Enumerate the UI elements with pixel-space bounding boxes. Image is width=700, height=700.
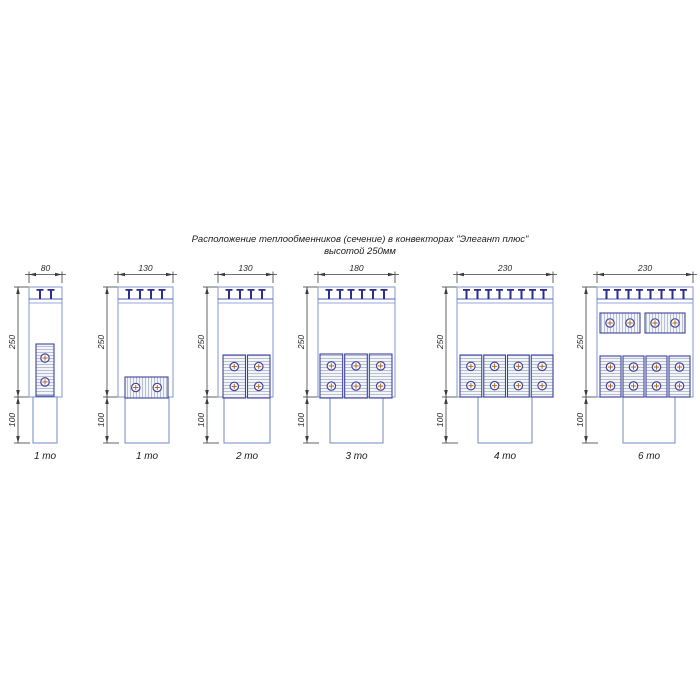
dimension-arrow bbox=[16, 390, 20, 397]
grille-tee-icon bbox=[328, 289, 330, 299]
dimension-arrow bbox=[444, 390, 448, 397]
dimension-arrow bbox=[388, 273, 395, 277]
dimension-arrow bbox=[305, 436, 309, 443]
height-dimension-label: 250 bbox=[435, 335, 445, 350]
width-dimension-label: 130 bbox=[238, 263, 252, 273]
height-dimension-label: 250 bbox=[575, 335, 585, 350]
duct-height-dimension-label: 100 bbox=[296, 413, 306, 427]
grille-tee-icon bbox=[543, 289, 545, 299]
dimension-arrow bbox=[29, 273, 36, 277]
dimension-arrow bbox=[16, 287, 20, 294]
grille-tee-icon bbox=[466, 289, 468, 299]
duct-height-dimension-label: 100 bbox=[96, 413, 106, 427]
dimension-arrow bbox=[105, 287, 109, 294]
dimension-arrow bbox=[318, 273, 325, 277]
grille-tee-icon bbox=[239, 289, 241, 299]
width-dimension-label: 80 bbox=[41, 263, 51, 273]
dimension-arrow bbox=[305, 390, 309, 397]
dimension-arrow bbox=[584, 436, 588, 443]
heat-exchanger-block bbox=[484, 355, 506, 397]
dimension-arrow bbox=[457, 273, 464, 277]
width-dimension-label: 230 bbox=[497, 263, 512, 273]
grille-tee-icon bbox=[128, 289, 130, 299]
convector-duct bbox=[33, 397, 57, 443]
grille-tee-icon bbox=[521, 289, 523, 299]
grille-tee-icon bbox=[606, 289, 608, 299]
convector-diagram: 1802501003 то bbox=[296, 263, 399, 462]
grille-tee-icon bbox=[139, 289, 141, 299]
dimension-arrow bbox=[444, 287, 448, 294]
heat-exchanger-block bbox=[248, 355, 271, 398]
grille-tee-icon bbox=[383, 289, 385, 299]
grille-tee-icon bbox=[661, 289, 663, 299]
duct-height-dimension-label: 100 bbox=[435, 413, 445, 427]
dimension-arrow bbox=[205, 287, 209, 294]
convector-diagram: 1302501001 то bbox=[96, 263, 177, 462]
grille-tee-icon bbox=[50, 289, 52, 299]
dimension-arrow bbox=[584, 397, 588, 404]
height-dimension-label: 250 bbox=[196, 335, 206, 350]
dimension-arrow bbox=[16, 397, 20, 404]
convector-sections-drawing: 802501001 то1302501001 то1302501002 то18… bbox=[0, 0, 700, 700]
grille-tee-icon bbox=[672, 289, 674, 299]
convector-diagram: 2302501004 то bbox=[435, 263, 557, 462]
convector-diagram: 2302501006 то bbox=[575, 263, 697, 462]
convector-duct bbox=[330, 397, 383, 443]
dimension-arrow bbox=[205, 397, 209, 404]
width-dimension-label: 130 bbox=[138, 263, 152, 273]
dimension-arrow bbox=[118, 273, 125, 277]
dimension-arrow bbox=[584, 390, 588, 397]
grille-tee-icon bbox=[510, 289, 512, 299]
grille-tee-icon bbox=[228, 289, 230, 299]
diagram-caption: 2 то bbox=[235, 451, 259, 462]
convector-duct bbox=[623, 397, 675, 443]
diagram-caption: 3 то bbox=[345, 451, 368, 462]
dimension-arrow bbox=[686, 273, 693, 277]
dimension-arrow bbox=[597, 273, 604, 277]
heat-exchanger-block bbox=[36, 344, 54, 396]
convector-duct bbox=[478, 397, 532, 443]
height-dimension-label: 250 bbox=[96, 335, 106, 350]
grille-tee-icon bbox=[339, 289, 341, 299]
heat-exchanger-block bbox=[646, 356, 667, 397]
convector-duct bbox=[224, 397, 270, 443]
diagram-caption: 1 то bbox=[136, 451, 159, 462]
duct-height-dimension-label: 100 bbox=[575, 413, 585, 427]
diagram-caption: 1 то bbox=[34, 451, 57, 462]
grille-tee-icon bbox=[39, 289, 41, 299]
grille-tee-icon bbox=[150, 289, 152, 299]
dimension-arrow bbox=[546, 273, 553, 277]
grille-tee-icon bbox=[650, 289, 652, 299]
convector-duct bbox=[125, 397, 169, 443]
dimension-arrow bbox=[166, 273, 173, 277]
grille-tee-icon bbox=[532, 289, 534, 299]
dimension-arrow bbox=[205, 436, 209, 443]
width-dimension-label: 180 bbox=[349, 263, 363, 273]
dimension-arrow bbox=[218, 273, 225, 277]
height-dimension-label: 250 bbox=[7, 335, 17, 350]
grille-tee-icon bbox=[488, 289, 490, 299]
grille-tee-icon bbox=[628, 289, 630, 299]
dimension-arrow bbox=[305, 287, 309, 294]
height-dimension-label: 250 bbox=[296, 335, 306, 350]
heat-exchanger-block bbox=[223, 355, 246, 398]
dimension-arrow bbox=[305, 397, 309, 404]
heat-exchanger-block bbox=[320, 354, 343, 398]
grille-tee-icon bbox=[477, 289, 479, 299]
diagram-caption: 6 то bbox=[638, 451, 661, 462]
dimension-arrow bbox=[105, 436, 109, 443]
grille-tee-icon bbox=[161, 289, 163, 299]
heat-exchanger-block bbox=[369, 354, 392, 398]
duct-height-dimension-label: 100 bbox=[196, 413, 206, 427]
grille-tee-icon bbox=[372, 289, 374, 299]
grille-tee-icon bbox=[683, 289, 685, 299]
grille-tee-icon bbox=[261, 289, 263, 299]
dimension-arrow bbox=[444, 397, 448, 404]
heat-exchanger-block bbox=[345, 354, 368, 398]
grille-tee-icon bbox=[617, 289, 619, 299]
dimension-arrow bbox=[16, 436, 20, 443]
dimension-arrow bbox=[266, 273, 273, 277]
convector-diagram: 802501001 то bbox=[7, 263, 66, 462]
heat-exchanger-block bbox=[623, 356, 644, 397]
diagram-caption: 4 то bbox=[494, 451, 517, 462]
heat-exchanger-block bbox=[600, 356, 621, 397]
width-dimension-label: 230 bbox=[637, 263, 652, 273]
heat-exchanger-block bbox=[508, 355, 530, 397]
duct-height-dimension-label: 100 bbox=[7, 413, 17, 427]
grille-tee-icon bbox=[350, 289, 352, 299]
dimension-arrow bbox=[55, 273, 62, 277]
dimension-arrow bbox=[205, 390, 209, 397]
dimension-arrow bbox=[105, 397, 109, 404]
dimension-arrow bbox=[105, 390, 109, 397]
grille-tee-icon bbox=[639, 289, 641, 299]
heat-exchanger-block bbox=[669, 356, 690, 397]
grille-tee-icon bbox=[361, 289, 363, 299]
heat-exchanger-block bbox=[531, 355, 553, 397]
grille-tee-icon bbox=[250, 289, 252, 299]
convector-diagram: 1302501002 то bbox=[196, 263, 277, 462]
heat-exchanger-block bbox=[460, 355, 482, 397]
dimension-arrow bbox=[444, 436, 448, 443]
dimension-arrow bbox=[584, 287, 588, 294]
grille-tee-icon bbox=[499, 289, 501, 299]
drawing-page: Расположение теплообменников (сечение) в… bbox=[0, 0, 700, 700]
